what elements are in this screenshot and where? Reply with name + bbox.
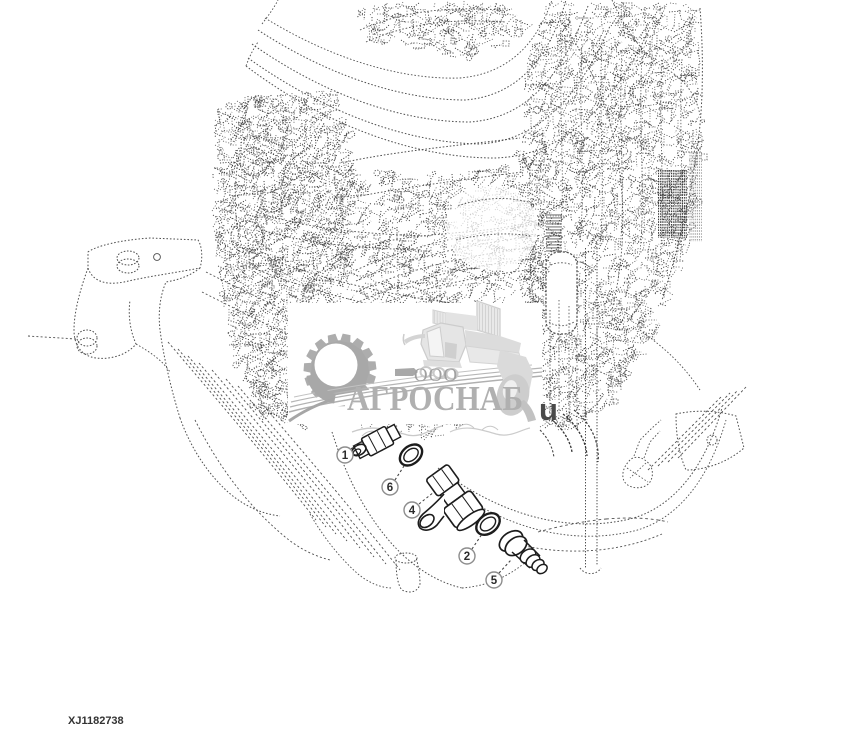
svg-text:u: u (539, 392, 558, 427)
svg-text:АГРОСНАБ: АГРОСНАБ (347, 379, 523, 418)
svg-text:4: 4 (409, 505, 416, 517)
svg-text:5: 5 (491, 575, 498, 587)
svg-text:2: 2 (464, 551, 470, 563)
svg-text:6: 6 (387, 482, 393, 494)
svg-text:XJ1182738: XJ1182738 (68, 715, 124, 727)
svg-text:1: 1 (342, 450, 349, 462)
